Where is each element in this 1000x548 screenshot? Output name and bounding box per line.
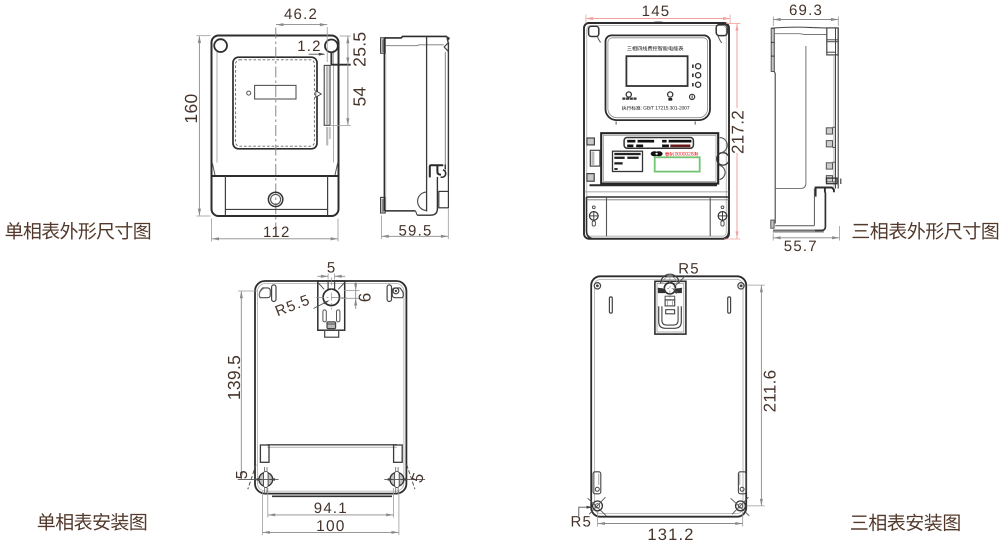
svg-text:211.6: 211.6 xyxy=(761,370,780,413)
svg-text:160: 160 xyxy=(181,93,201,123)
svg-text:94.1: 94.1 xyxy=(314,500,348,517)
svg-text:1.2: 1.2 xyxy=(297,38,321,55)
svg-text:6: 6 xyxy=(356,292,375,302)
svg-text:55.7: 55.7 xyxy=(784,238,818,255)
svg-text:217.2: 217.2 xyxy=(729,110,748,154)
svg-text:139.5: 139.5 xyxy=(224,355,244,400)
svg-text:59.5: 59.5 xyxy=(399,222,433,239)
svg-text:5: 5 xyxy=(234,469,251,479)
svg-text:46.2: 46.2 xyxy=(284,6,318,23)
svg-text:R5: R5 xyxy=(571,514,593,531)
svg-text:5: 5 xyxy=(327,260,337,277)
svg-text:R5: R5 xyxy=(678,261,700,278)
svg-text:112: 112 xyxy=(263,224,291,241)
svg-text:145: 145 xyxy=(642,3,671,20)
svg-text:131.2: 131.2 xyxy=(647,526,694,544)
svg-text:25.5: 25.5 xyxy=(350,32,370,67)
svg-text:: GB/T 17215.301-2007: : GB/T 17215.301-2007 xyxy=(641,106,690,112)
svg-text:100: 100 xyxy=(316,518,345,535)
svg-text:69.3: 69.3 xyxy=(789,2,823,19)
svg-text:54: 54 xyxy=(350,86,370,106)
